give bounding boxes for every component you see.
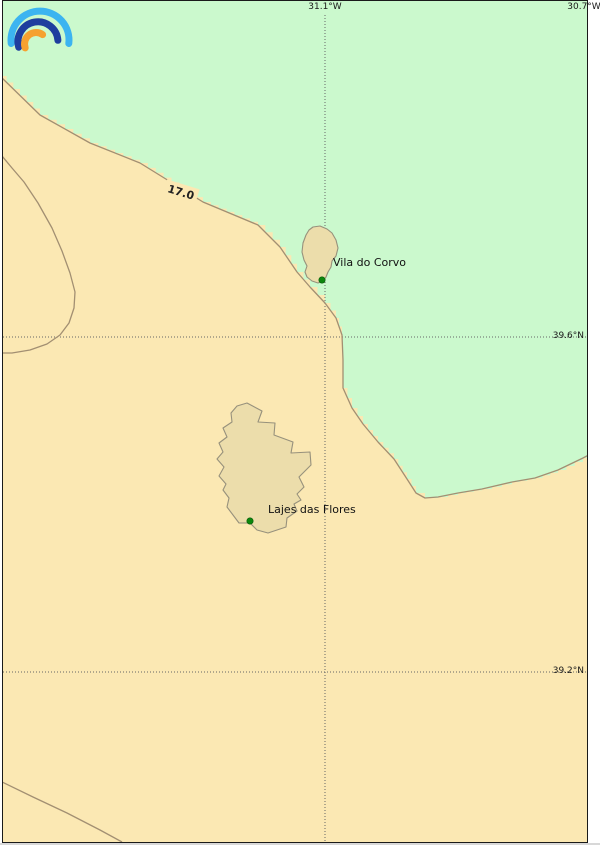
parallel-label-39-6n: 39.6°N xyxy=(524,332,584,341)
parallel-label-39-2n: 39.2°N xyxy=(524,667,584,676)
place-label-vila-do-corvo: Vila do Corvo xyxy=(333,257,406,268)
place-label-lajes-das-flores: Lajes das Flores xyxy=(268,504,356,515)
place-marker-dot[interactable] xyxy=(247,518,253,524)
right-margin xyxy=(588,0,600,845)
meridian-label-30-7w: 30.7°W xyxy=(564,3,600,12)
logo-inner-arc xyxy=(25,33,43,48)
rainbow-logo-icon xyxy=(0,0,82,58)
map-viewport: 17.0 31.1°W 30.7°W 39.6°N 39.2°N Vila do… xyxy=(0,0,600,845)
map-canvas[interactable]: 17.0 xyxy=(0,0,600,845)
place-marker-dot[interactable] xyxy=(319,277,325,283)
map-layers: 17.0 xyxy=(0,0,600,845)
meridian-label-31-1w: 31.1°W xyxy=(303,3,347,12)
